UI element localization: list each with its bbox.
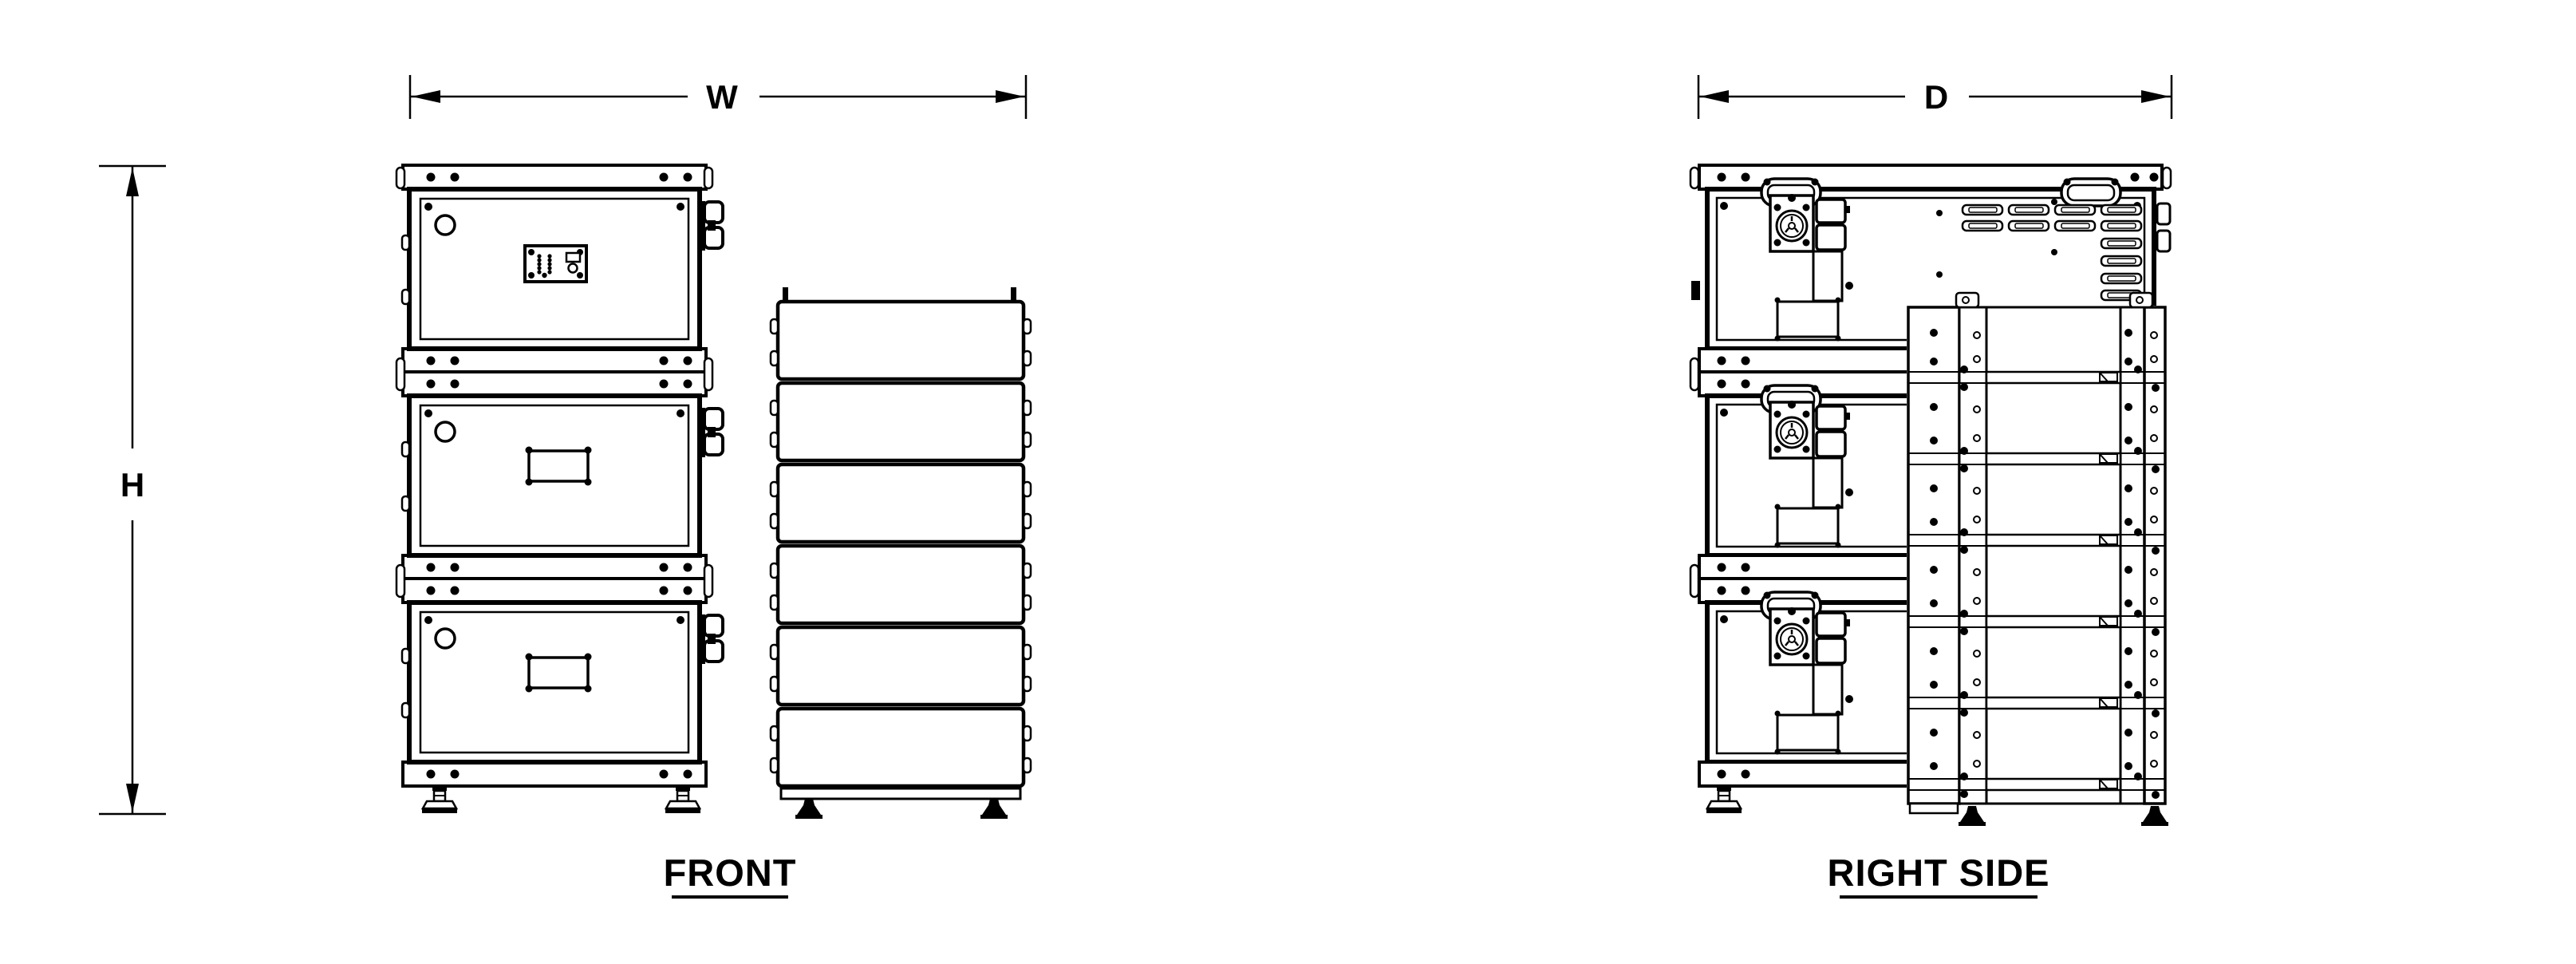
hinge-nub bbox=[402, 496, 409, 511]
door-latch bbox=[700, 614, 723, 664]
stack-pin bbox=[704, 168, 712, 188]
dim-width-label: W bbox=[706, 78, 738, 116]
stacking-rail bbox=[403, 555, 706, 579]
front-view: FRONT bbox=[396, 165, 1031, 897]
stacking-rail bbox=[403, 165, 706, 189]
arrowhead-left-icon bbox=[1700, 90, 1729, 103]
tray-rows bbox=[778, 302, 1024, 786]
technical-drawing: W H D bbox=[0, 0, 2576, 964]
stacking-rail bbox=[403, 762, 706, 786]
latch-side-profile bbox=[2157, 231, 2170, 251]
arrowhead-right-icon bbox=[2141, 90, 2170, 103]
front-tray-stack bbox=[771, 287, 1031, 819]
tray-post bbox=[783, 287, 788, 301]
front-view-label: FRONT bbox=[664, 851, 797, 894]
dimension-depth: D bbox=[1698, 75, 2172, 119]
tray-foot bbox=[1959, 806, 1986, 826]
hinge-nub bbox=[402, 649, 409, 663]
carry-handle bbox=[2061, 179, 2120, 207]
side-tray-stack bbox=[1907, 293, 2168, 826]
stack-pin bbox=[396, 168, 404, 188]
stack-pin bbox=[2163, 168, 2171, 188]
arrowhead-down-icon bbox=[126, 784, 139, 812]
tray-post bbox=[1011, 287, 1016, 301]
right-side-view-caption: RIGHT SIDE bbox=[1828, 851, 2050, 897]
power-outlet-plate bbox=[525, 246, 586, 282]
stack-pin bbox=[396, 565, 404, 597]
leveling-foot bbox=[422, 785, 457, 813]
hinge-nub bbox=[402, 235, 409, 250]
drawer-handle bbox=[526, 654, 592, 693]
stack-pin bbox=[1690, 168, 1698, 188]
right-side-view-label: RIGHT SIDE bbox=[1828, 851, 2050, 894]
tray-rail-plate bbox=[2144, 307, 2165, 804]
dim-depth-label: D bbox=[1924, 78, 1948, 116]
stack-pin bbox=[704, 358, 712, 390]
tray-rail-strip bbox=[2120, 307, 2144, 804]
stack-pin bbox=[396, 358, 404, 390]
stack-pin bbox=[1690, 358, 1698, 390]
rear-tab bbox=[1691, 281, 1700, 300]
tray-rail-strip bbox=[1959, 307, 1986, 804]
dim-height-label: H bbox=[120, 466, 144, 504]
door-latch bbox=[700, 201, 723, 251]
drawing-canvas: W H D bbox=[0, 0, 2576, 964]
arrowhead-up-icon bbox=[126, 168, 139, 196]
leveling-foot bbox=[665, 785, 700, 813]
right-side-view: RIGHT SIDE bbox=[1690, 165, 2171, 897]
hinge-nub bbox=[402, 703, 409, 717]
stacking-rail bbox=[403, 579, 706, 602]
front-cabinet-stack bbox=[396, 165, 723, 813]
stack-pin bbox=[704, 565, 712, 597]
tray-foot bbox=[2141, 806, 2168, 826]
tray-foot bbox=[795, 799, 823, 819]
stacking-rail bbox=[403, 372, 706, 396]
arrowhead-right-icon bbox=[996, 90, 1024, 103]
leveling-foot bbox=[1706, 785, 1742, 813]
front-view-caption: FRONT bbox=[664, 851, 797, 897]
tray-base bbox=[781, 788, 1020, 799]
tray-bottom-lip bbox=[1910, 804, 1958, 813]
dimension-width: W bbox=[410, 75, 1026, 119]
drawer-handle bbox=[526, 447, 592, 486]
hinge-nub bbox=[402, 290, 409, 304]
dimension-height: H bbox=[99, 166, 166, 814]
arrowhead-left-icon bbox=[412, 90, 440, 103]
tray-foot bbox=[980, 799, 1008, 819]
latch-side-profile bbox=[2157, 203, 2170, 224]
hinge-nub bbox=[402, 442, 409, 456]
stack-pin bbox=[1690, 565, 1698, 597]
stacking-rail bbox=[403, 349, 706, 373]
door-latch bbox=[700, 408, 723, 457]
